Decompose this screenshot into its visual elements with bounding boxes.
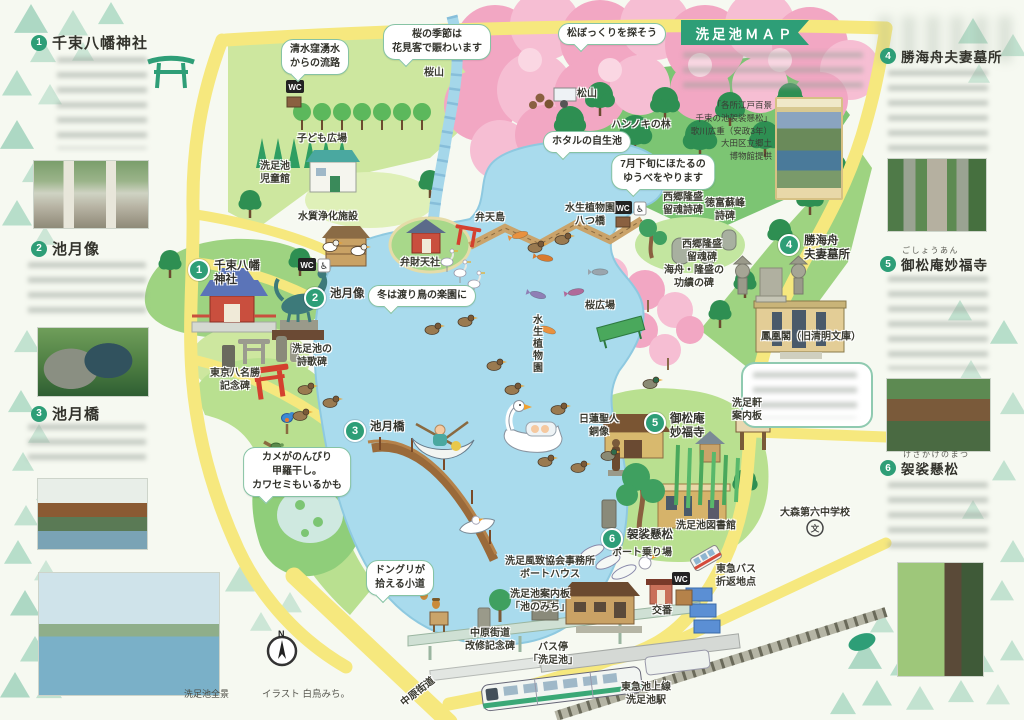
section-header-2: 2 池月像 bbox=[31, 238, 100, 259]
map-label: バス停 「洗足池」 bbox=[528, 641, 578, 667]
section-header-3: 3 池月橋 bbox=[31, 403, 100, 424]
map-label: 弁財天社 bbox=[400, 257, 440, 270]
photo-temple-hall bbox=[886, 378, 991, 452]
map-label: 西郷隆盛 留魂碑 bbox=[682, 238, 722, 264]
map-label: 洗足池図書館 bbox=[676, 520, 736, 533]
svg-text:♿: ♿ bbox=[636, 204, 644, 214]
section-title: 御松庵妙福寺 bbox=[901, 254, 988, 274]
svg-text:WC: WC bbox=[616, 204, 630, 213]
svg-text:♿: ♿ bbox=[320, 261, 328, 271]
blurred-description bbox=[57, 57, 147, 149]
map-title-banner: 洗足池ＭＡＰ bbox=[681, 20, 809, 45]
section-title: 池月橋 bbox=[52, 403, 100, 424]
map-label: 大森第六中学校 bbox=[780, 507, 850, 520]
photo-horse-statue bbox=[37, 327, 149, 397]
map-label: 洗足軒 案内板 bbox=[732, 397, 762, 423]
photo-wooden-bridge bbox=[37, 478, 148, 550]
map-marker-1: 1千束八幡 神社 bbox=[188, 259, 260, 288]
map-label: 洗足風致協会事務所 ボートハウス bbox=[505, 555, 595, 581]
map-label: 東京八名勝 記念碑 bbox=[210, 367, 260, 393]
marker-label: 御松庵 妙福寺 bbox=[670, 413, 705, 441]
marker-label: 池月像 bbox=[330, 288, 365, 302]
map-label: 松山 bbox=[577, 88, 597, 101]
map-label: 洗足池案内板 「池のみち」 bbox=[510, 588, 570, 614]
map-label: 洗足池の 詩歌碑 bbox=[292, 343, 332, 369]
map-label: 洗足池 児童館 bbox=[260, 160, 290, 186]
map-label: 水生植物園 八つ橋 bbox=[565, 202, 615, 228]
blurred-description bbox=[888, 276, 988, 370]
pond-photo-caption: 洗足池全景 bbox=[165, 687, 229, 700]
illustrator-credit: イラスト 白鳥みち。 bbox=[262, 686, 350, 700]
senzoku-pond-map-page: WCWCWCWC♿♿文 洗足池ＭＡＰ 「各所江戸百景 千束の池袈裟懸松」 歌川広… bbox=[0, 0, 1024, 720]
map-label: 東急池上線 洗足池駅 bbox=[621, 681, 671, 707]
marker-number-badge: 3 bbox=[344, 420, 366, 442]
map-label: 水質浄化施設 bbox=[298, 211, 358, 224]
speech-bubble: ホタルの自生池 bbox=[543, 131, 631, 153]
section-number-badge: 6 bbox=[880, 460, 896, 476]
map-label: 鳳凰閣（旧清明文庫） bbox=[761, 331, 861, 344]
intro-blurred-paragraph bbox=[683, 52, 863, 90]
photo-pine-shrine bbox=[897, 562, 984, 677]
photo-pond-panorama bbox=[38, 572, 220, 696]
compass-north-label: N bbox=[278, 629, 285, 639]
section-title: 千束八幡神社 bbox=[52, 32, 148, 53]
speech-bubble: 冬は渡り鳥の楽園に bbox=[368, 285, 476, 307]
map-label: 交番 bbox=[652, 605, 672, 618]
section-number-badge: 1 bbox=[31, 35, 47, 51]
marker-label: 池月橋 bbox=[370, 421, 405, 435]
section-header-5: 5 御松庵妙福寺 bbox=[880, 254, 988, 274]
map-label: 日蓮聖人 銅像 bbox=[579, 413, 619, 439]
map-label: ハンノキの林 bbox=[611, 119, 671, 132]
svg-text:WC: WC bbox=[288, 83, 302, 92]
blurred-description bbox=[888, 70, 988, 152]
blurred-description bbox=[888, 482, 988, 548]
map-marker-5: 5御松庵 妙福寺 bbox=[644, 412, 705, 441]
speech-bubble: ドングリが 拾える小道 bbox=[366, 560, 434, 596]
map-label: 水生植物園 bbox=[530, 314, 543, 374]
blurred-description bbox=[28, 424, 146, 468]
map-marker-2: 2池月像 bbox=[304, 287, 365, 309]
map-marker-4: 4勝海舟 夫妻墓所 bbox=[778, 234, 850, 263]
marker-label: 袈裟懸松 bbox=[627, 529, 673, 543]
section-number-badge: 4 bbox=[880, 48, 896, 64]
childrens-hall-building bbox=[306, 150, 360, 192]
section-number-badge: 5 bbox=[880, 256, 896, 272]
map-label: 海舟・隆盛の 功績の碑 bbox=[664, 264, 724, 290]
map-marker-6: 6袈裟懸松 bbox=[601, 528, 673, 550]
section-number-badge: 3 bbox=[31, 406, 47, 422]
section-header-6: 6 袈裟懸松 bbox=[880, 458, 959, 478]
svg-text:WC: WC bbox=[300, 261, 314, 270]
section-number-badge: 2 bbox=[31, 241, 47, 257]
section-title: 袈裟懸松 bbox=[901, 458, 959, 478]
section-title: 勝海舟夫妻墓所 bbox=[901, 46, 1003, 66]
map-label: 西郷隆盛 留魂詩碑 bbox=[663, 191, 703, 217]
map-label: 桜広場 bbox=[585, 300, 615, 313]
section-header-1: 1 千束八幡神社 bbox=[31, 32, 148, 53]
map-label: 子ども広場 bbox=[297, 133, 347, 146]
photo-stone-lanterns bbox=[887, 158, 987, 232]
marker-number-badge: 6 bbox=[601, 528, 623, 550]
speech-bubble: 清水窪湧水 からの流路 bbox=[281, 39, 349, 75]
marker-number-badge: 5 bbox=[644, 412, 666, 434]
map-marker-3: 3池月橋 bbox=[344, 420, 405, 442]
speech-bubble: 松ぼっくりを探そう bbox=[558, 23, 666, 45]
marker-label: 勝海舟 夫妻墓所 bbox=[804, 235, 850, 263]
marker-number-badge: 4 bbox=[778, 234, 800, 256]
map-label: 中原街道 改修記念碑 bbox=[465, 627, 515, 653]
section-header-4: 4 勝海舟夫妻墓所 bbox=[880, 46, 1003, 66]
map-label: 桜山 bbox=[424, 67, 444, 80]
speech-bubble: カメがのんびり 甲羅干し。 カワセミもいるかも bbox=[243, 447, 351, 497]
svg-text:文: 文 bbox=[811, 524, 820, 534]
speech-bubble: 桜の季節は 花見客で賑わいます bbox=[383, 24, 491, 60]
compass-icon bbox=[268, 637, 296, 665]
section-title: 池月像 bbox=[52, 238, 100, 259]
marker-number-badge: 1 bbox=[188, 259, 210, 281]
photo-torii-steps bbox=[33, 160, 149, 229]
torii-logo-icon bbox=[148, 58, 194, 88]
map-label: 弁天島 bbox=[475, 212, 505, 225]
marker-label: 千束八幡 神社 bbox=[214, 260, 260, 288]
blurred-description bbox=[28, 262, 146, 316]
ukiyoe-caption: 「各所江戸百景 千束の池袈裟懸松」 歌川広重（安政3年） 大田区立郷土 博物館提… bbox=[686, 99, 772, 163]
marker-number-badge: 2 bbox=[304, 287, 326, 309]
ukiyoe-print-image bbox=[775, 97, 843, 200]
map-label: 東急バス 折返地点 bbox=[716, 563, 756, 589]
map-label: 徳富蘇峰 詩碑 bbox=[705, 197, 745, 223]
svg-text:WC: WC bbox=[674, 575, 688, 584]
